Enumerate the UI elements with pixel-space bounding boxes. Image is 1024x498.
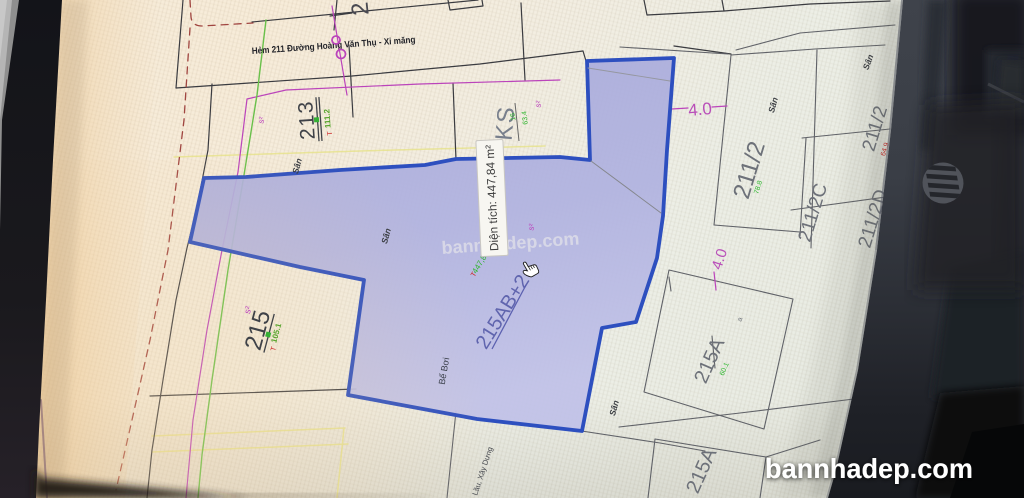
svg-text:16: 16 [510,112,518,121]
svg-text:4.0: 4.0 [687,99,712,120]
svg-text:bannhadep.com: bannhadep.com [765,453,973,484]
svg-text:111.2: 111.2 [322,108,332,128]
svg-text:2: 2 [346,1,374,17]
